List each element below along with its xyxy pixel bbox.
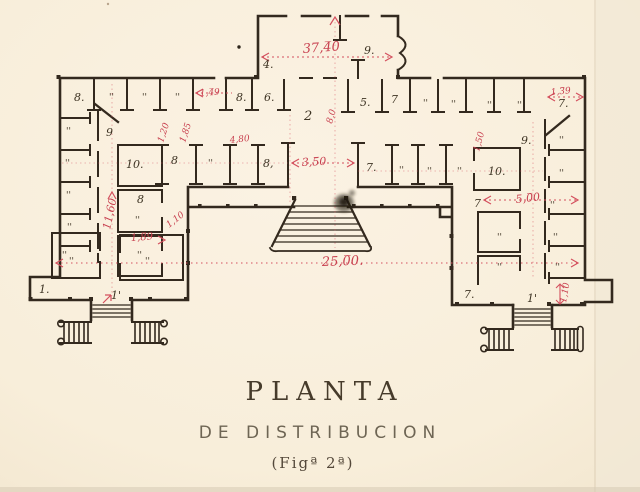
dim-label: 37,4̅0 [302,39,340,57]
room-label: '' [399,166,404,176]
room-label: 8. [74,91,85,104]
room-label: '' [550,201,555,211]
paper-speck [107,3,109,5]
room-label: '' [553,233,558,243]
room-label: '' [555,263,560,273]
scanned-plan-page: 4.9.8.''''''8.6.5.7''''''''7.99.210.8''8… [0,0,640,492]
room-label: 7. [464,288,475,301]
plan-subtitle: DE DISTRIBUCION [199,423,441,443]
room-label: '' [423,99,428,109]
room-label: '' [145,257,150,267]
floor-plan-drawing: 4.9.8.''''''8.6.5.7''''''''7.99.210.8''8… [0,0,640,492]
room-label: '' [62,251,67,261]
room-label: 9. [364,44,375,57]
room-label: '' [135,216,140,226]
room-label: 8 [171,154,178,167]
dim-label: 25,0̅0. [321,254,364,270]
room-label: '' [65,159,70,169]
figure-caption: (Figª 2ª) [271,454,354,472]
paper-bottom-edge [0,487,640,492]
room-label: 8 [137,193,144,206]
dim-label: 1,4̅9 [200,88,221,99]
room-label: '' [487,101,492,111]
room-label: 4. [262,58,274,71]
room-label: '' [497,263,502,273]
dim-label: 5,0̅0 [515,190,541,205]
room-label: 9. [521,134,532,147]
room-label: 7 [391,93,398,106]
room-label: 7 [474,197,481,210]
paper-background [0,0,640,492]
ink-dot [237,45,240,48]
paper-fold-band [596,0,640,492]
room-label: '' [559,169,564,179]
room-label: '' [451,100,456,110]
room-label: 8, [263,157,274,170]
room-label: 6. [264,91,275,104]
room-label: '' [69,257,74,267]
room-label: 10. [488,165,506,178]
room-label: 1' [111,289,121,302]
dim-label: 1,3̅9 [550,86,571,98]
room-label: '' [66,191,71,201]
room-label: 7. [366,161,377,174]
room-label: 1. [39,283,50,296]
room-label: '' [137,251,142,261]
room-label: '' [109,93,114,103]
room-label: 5. [360,96,371,109]
room-label: 1' [527,292,537,305]
room-label: 10. [126,158,144,171]
room-label: 2 [303,109,312,124]
dim-label: 3,5̅0 [301,155,326,169]
room-label: 8. [236,91,247,104]
room-label: 7. [558,97,569,110]
room-label: '' [67,223,72,233]
room-label: 9 [106,126,113,139]
room-label: '' [208,159,213,169]
room-label: '' [457,167,462,177]
room-label: '' [517,101,522,111]
room-label: '' [497,233,502,243]
dim-label: 1,8̅9 [130,231,154,244]
room-label: '' [427,167,432,177]
room-label: '' [66,127,71,137]
room-label: '' [142,93,147,103]
room-label: '' [175,93,180,103]
plan-title: PLANTA [246,377,405,407]
room-label: '' [559,136,564,146]
